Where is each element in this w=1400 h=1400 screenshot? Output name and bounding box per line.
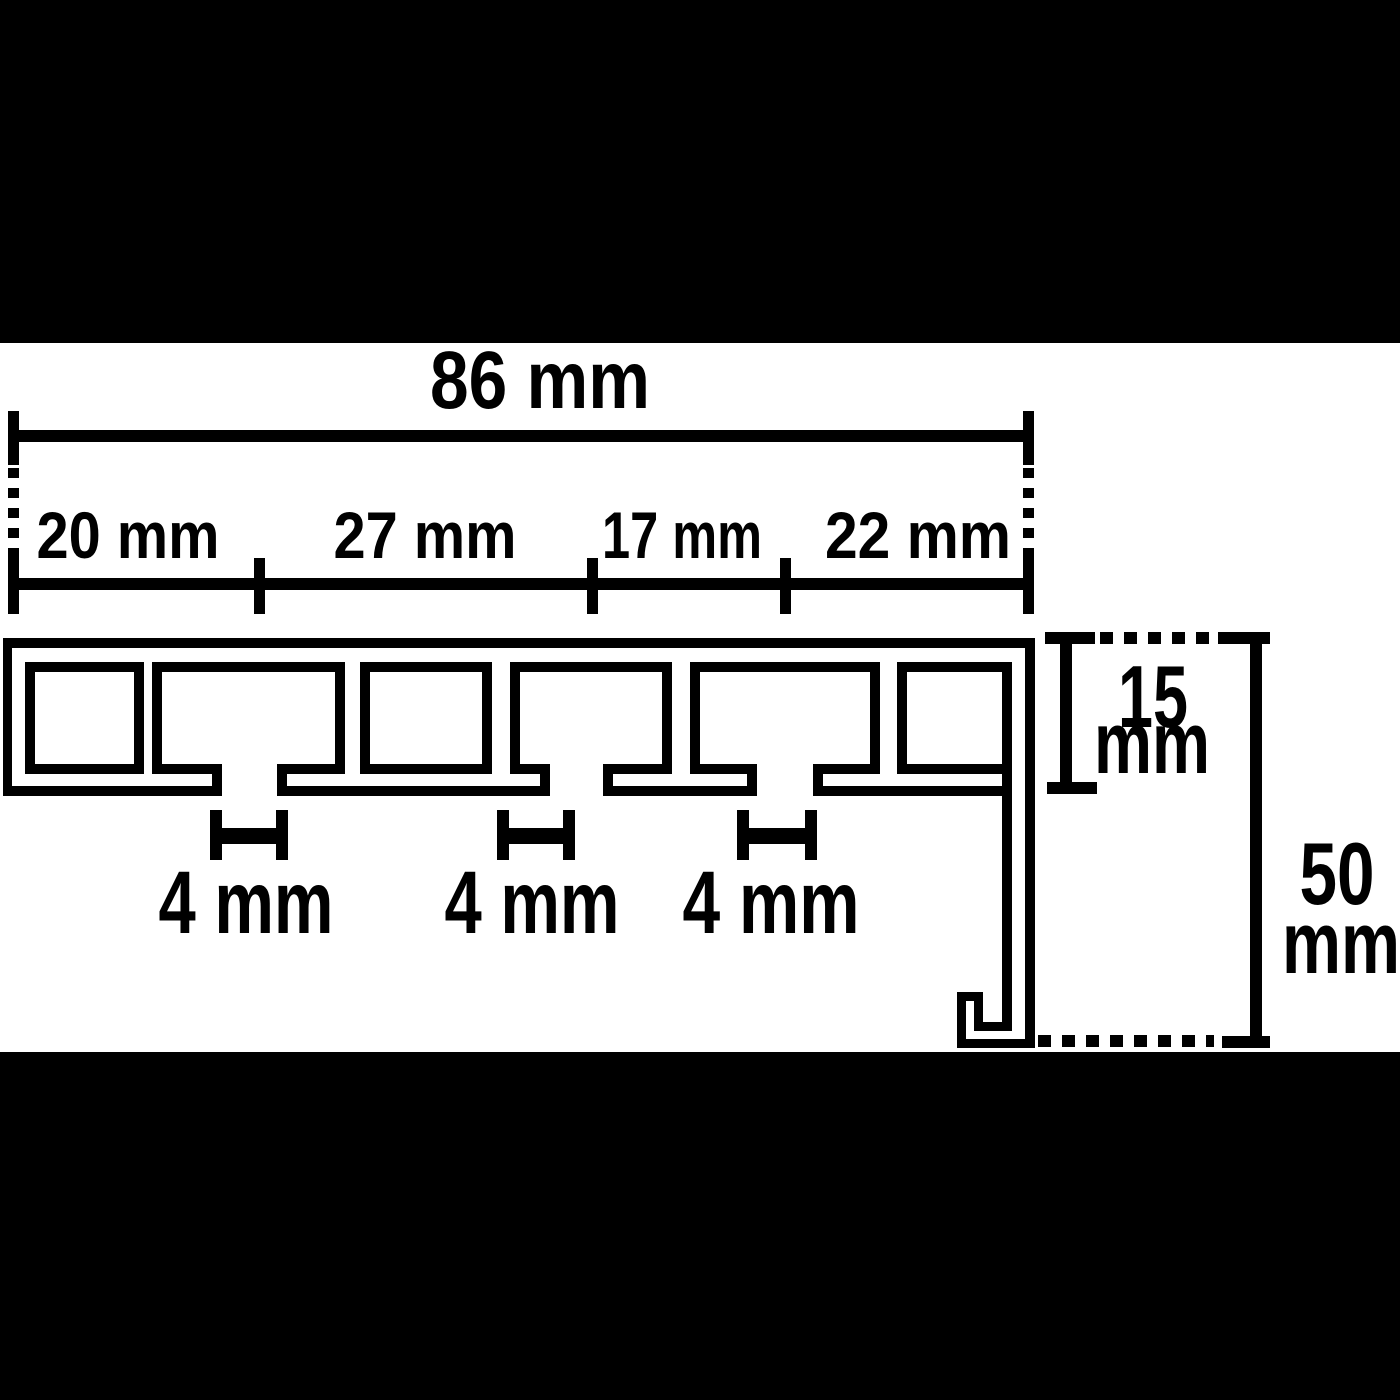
chamber3-bottom <box>360 764 492 774</box>
chamber6-bottom <box>897 764 1012 774</box>
slot2-dimension-bar <box>497 828 575 844</box>
slot2-neck-wall-left <box>540 764 550 796</box>
chamber2-top <box>152 662 345 672</box>
chamber1-bottom <box>25 764 144 774</box>
profile-outer-top-edge <box>3 638 1035 648</box>
chamber1-right <box>134 662 144 774</box>
dimension-width-segments: 20 mm 27 mm 17 mm 22 mm <box>8 498 1034 614</box>
chamber2-left <box>152 662 162 774</box>
chamber2-right <box>335 662 345 774</box>
dimension-total-height: 50 mm <box>1038 632 1400 1048</box>
profile-outer-bottom-seg2 <box>277 786 550 796</box>
segment-tick-2 <box>587 558 598 614</box>
slot2-neck-wall-right <box>603 764 613 796</box>
chamber5-bottom-right <box>813 764 880 774</box>
dimension-slot-1: 4 mm <box>159 810 334 952</box>
slot3-neck-wall-right <box>813 764 823 796</box>
hook-foot-bottom <box>957 1039 1035 1048</box>
total-height-serif-top <box>1218 632 1270 644</box>
segment-tick-4 <box>1023 558 1034 614</box>
chamber5-bottom-left <box>690 764 757 774</box>
total-height-unit: mm <box>1282 893 1400 992</box>
chamber6-left <box>897 662 907 774</box>
front-height-bar <box>1060 632 1072 794</box>
chamber4-right <box>662 662 672 774</box>
total-height-serif-bottom <box>1222 1036 1270 1048</box>
chamber5-right <box>870 662 880 774</box>
chamber3-left <box>360 662 370 774</box>
chamber5-top <box>690 662 880 672</box>
hook-foot-inner <box>974 1022 1012 1031</box>
profile-outer-bottom-seg3 <box>603 786 757 796</box>
segment-label-17mm: 17 mm <box>602 498 762 572</box>
segment-label-27mm: 27 mm <box>334 498 517 572</box>
segment-tick-0 <box>8 558 19 614</box>
front-height-unit: mm <box>1094 693 1210 792</box>
overall-tick-left <box>8 411 19 465</box>
side-wall-outer-line <box>1025 638 1035 1048</box>
slot1-neck-wall-right <box>277 764 287 796</box>
chamber6-top <box>897 662 1012 672</box>
chamber4-left <box>510 662 520 774</box>
slot2-label: 4 mm <box>445 852 620 952</box>
profile-outer-left-wall <box>3 638 12 796</box>
segment-dimension-line <box>8 578 1034 590</box>
overall-width-label: 86 mm <box>430 335 650 426</box>
overall-dimension-line <box>8 430 1034 442</box>
segment-tick-1 <box>254 558 265 614</box>
chamber2-bottom-right <box>277 764 345 774</box>
side-wall-inner-line <box>1002 764 1012 1030</box>
top-letterbox-bar <box>0 0 1400 343</box>
slot3-label: 4 mm <box>683 852 860 952</box>
chamber3-right <box>482 662 492 774</box>
segment-label-20mm: 20 mm <box>37 498 220 572</box>
slot3-dimension-bar <box>737 828 817 844</box>
bottom-letterbox-bar <box>0 1052 1400 1400</box>
segment-label-22mm: 22 mm <box>825 498 1011 572</box>
chamber5-left <box>690 662 700 774</box>
dimension-slot-3: 4 mm <box>683 810 860 952</box>
overall-tick-right <box>1023 411 1034 465</box>
chamber1-left <box>25 662 35 774</box>
chamber4-top <box>510 662 672 672</box>
profile-outer-bottom-seg4 <box>813 786 1012 796</box>
slot1-label: 4 mm <box>159 852 334 952</box>
dimension-front-height: 15 mm <box>1045 632 1214 794</box>
segment-tick-3 <box>780 558 791 614</box>
slot1-dimension-bar <box>210 828 288 844</box>
curtain-rail-dimension-diagram: 86 mm 20 mm 27 mm 17 mm 22 mm <box>0 0 1400 1400</box>
profile-outer-bottom-seg1 <box>3 786 222 796</box>
chamber1-top <box>25 662 144 672</box>
slot1-neck-wall-left <box>212 764 222 796</box>
total-height-bar <box>1250 632 1262 1048</box>
chamber6-right <box>1002 662 1012 774</box>
screenshot-canvas: 86 mm 20 mm 27 mm 17 mm 22 mm <box>0 0 1400 1400</box>
hook-lip-cap <box>957 992 983 1001</box>
slot3-neck-wall-left <box>747 764 757 796</box>
chamber3-top <box>360 662 492 672</box>
dimension-slot-2: 4 mm <box>445 810 620 952</box>
front-height-serif-bottom <box>1047 782 1097 794</box>
chamber2-bottom-left <box>152 764 222 774</box>
chamber4-bottom-right <box>603 764 672 774</box>
